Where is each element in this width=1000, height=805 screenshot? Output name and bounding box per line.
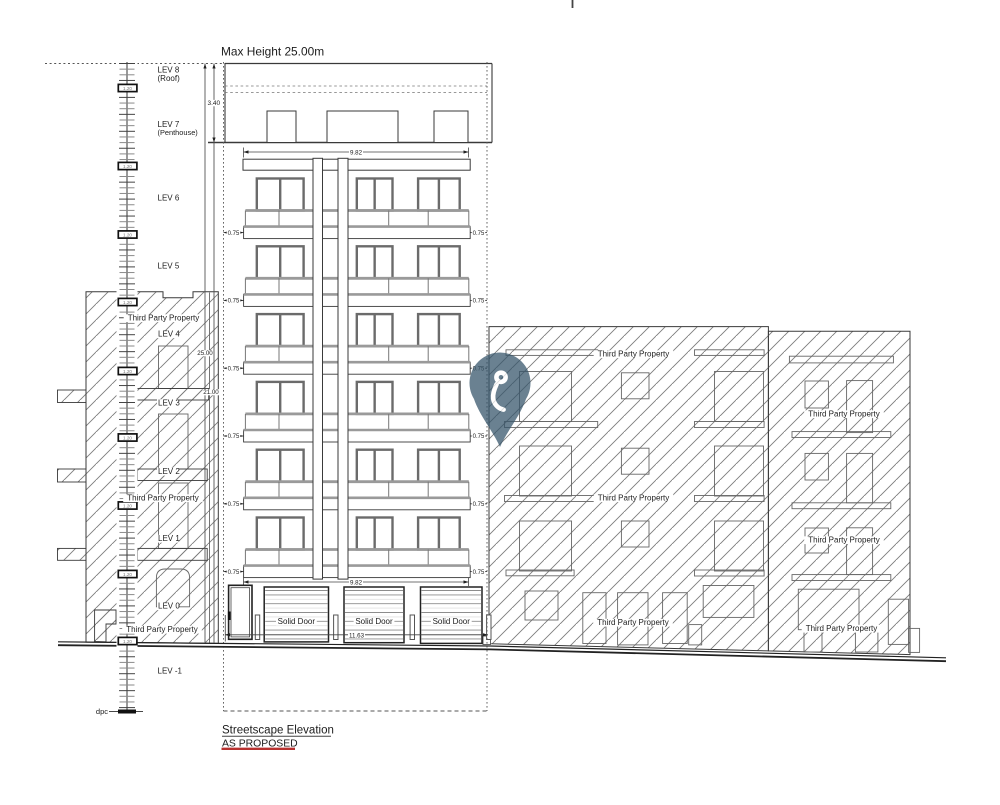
svg-text:Max Height 25.00m: Max Height 25.00m bbox=[221, 45, 324, 59]
svg-text:9.82: 9.82 bbox=[350, 580, 363, 587]
svg-text:1.20: 1.20 bbox=[123, 233, 132, 238]
svg-text:LEV 6: LEV 6 bbox=[158, 194, 180, 203]
svg-text:9.82: 9.82 bbox=[350, 150, 363, 157]
svg-text:25.00: 25.00 bbox=[197, 350, 213, 357]
svg-text:1.20: 1.20 bbox=[123, 300, 132, 305]
svg-text:0.75: 0.75 bbox=[473, 434, 485, 440]
svg-text:Streetscape Elevation: Streetscape Elevation bbox=[222, 725, 334, 737]
svg-text:0.75: 0.75 bbox=[473, 570, 485, 576]
svg-text:Third Party Property: Third Party Property bbox=[128, 314, 200, 323]
svg-text:0.75: 0.75 bbox=[228, 434, 240, 440]
svg-text:0.75: 0.75 bbox=[473, 231, 485, 237]
svg-text:1.20: 1.20 bbox=[123, 504, 132, 509]
svg-text:11.63: 11.63 bbox=[349, 632, 365, 639]
svg-text:Solid Door: Solid Door bbox=[278, 617, 316, 626]
svg-text:LEV -1: LEV -1 bbox=[158, 667, 183, 676]
svg-text:21.00: 21.00 bbox=[203, 389, 219, 396]
svg-text:3.40: 3.40 bbox=[207, 100, 220, 107]
svg-text:LEV 1: LEV 1 bbox=[158, 534, 180, 543]
svg-text:1.20: 1.20 bbox=[123, 436, 132, 441]
svg-text:Third Party Property: Third Party Property bbox=[126, 625, 198, 634]
svg-text:0.75: 0.75 bbox=[473, 502, 485, 508]
svg-text:Third Party Property: Third Party Property bbox=[808, 410, 880, 419]
svg-text:(Roof): (Roof) bbox=[158, 74, 181, 83]
svg-text:1.20: 1.20 bbox=[123, 369, 132, 374]
svg-text:Third Party Property: Third Party Property bbox=[806, 624, 878, 633]
svg-text:LEV 2: LEV 2 bbox=[158, 467, 180, 476]
svg-text:1.20: 1.20 bbox=[123, 572, 132, 577]
svg-text:1.20: 1.20 bbox=[123, 86, 132, 91]
svg-text:Third Party Property: Third Party Property bbox=[127, 494, 199, 503]
svg-text:Solid Door: Solid Door bbox=[433, 617, 471, 626]
svg-text:0.75: 0.75 bbox=[228, 366, 240, 372]
svg-text:dpc: dpc bbox=[96, 707, 108, 716]
svg-text:Third Party Property: Third Party Property bbox=[598, 350, 670, 359]
svg-text:Solid Door: Solid Door bbox=[355, 617, 393, 626]
svg-text:0.75: 0.75 bbox=[228, 231, 240, 237]
svg-text:LEV 4: LEV 4 bbox=[158, 330, 180, 339]
svg-text:0.75: 0.75 bbox=[228, 502, 240, 508]
svg-text:Third Party Property: Third Party Property bbox=[598, 494, 670, 503]
svg-text:1.20: 1.20 bbox=[123, 639, 132, 644]
svg-text:LEV 0: LEV 0 bbox=[158, 602, 180, 611]
svg-text:Third Party Property: Third Party Property bbox=[808, 536, 880, 545]
svg-text:0.75: 0.75 bbox=[228, 570, 240, 576]
svg-text:(Penthouse): (Penthouse) bbox=[158, 128, 198, 137]
svg-text:LEV 5: LEV 5 bbox=[158, 261, 180, 270]
svg-text:LEV 3: LEV 3 bbox=[158, 399, 180, 408]
svg-text:1.20: 1.20 bbox=[123, 164, 132, 169]
svg-text:0.75: 0.75 bbox=[228, 299, 240, 305]
svg-text:Third Party Property: Third Party Property bbox=[597, 618, 669, 627]
svg-text:0.75: 0.75 bbox=[473, 299, 485, 305]
